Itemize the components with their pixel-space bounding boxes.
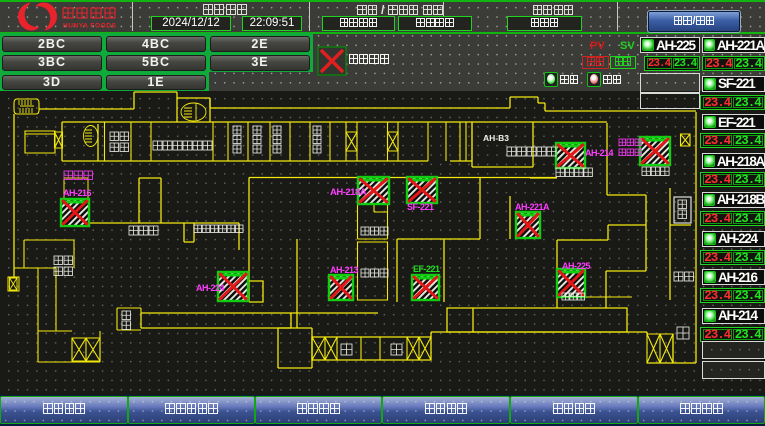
svg-text:AH-B3: AH-B3: [483, 133, 509, 143]
svg-text:AH-225: AH-225: [562, 261, 591, 271]
svg-text:AH-224: AH-224: [196, 283, 225, 293]
svg-text:AH-214: AH-214: [585, 148, 614, 158]
svg-text:SF-221: SF-221: [407, 202, 434, 212]
svg-text:AH-216: AH-216: [63, 188, 92, 198]
svg-text:AH-218A: AH-218A: [330, 187, 367, 198]
svg-text:EF-221: EF-221: [413, 264, 440, 274]
svg-text:AH-221A: AH-221A: [515, 202, 550, 212]
svg-text:AH-213: AH-213: [330, 265, 359, 275]
